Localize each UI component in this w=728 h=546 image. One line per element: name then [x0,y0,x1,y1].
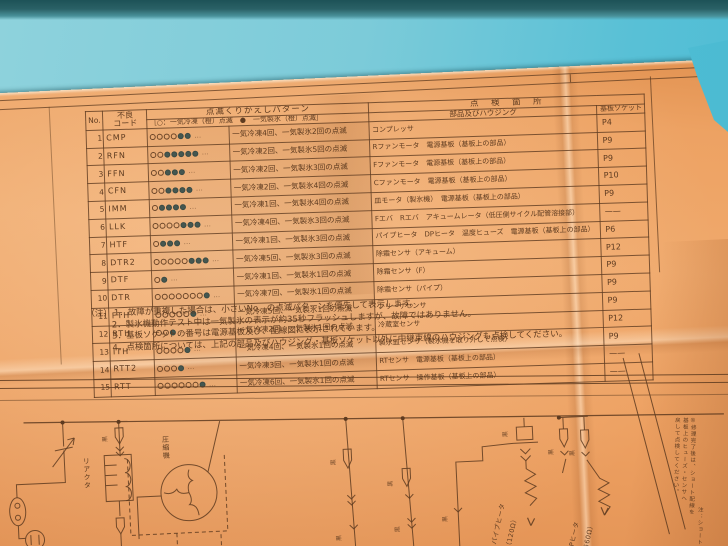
cell-fault-code: FFN [105,164,150,183]
cell-board-socket: —— [600,202,649,221]
blink-dot-filled [193,151,199,157]
cell-board-socket: P4 [597,113,646,132]
cell-fault-code: LLK [106,217,151,236]
service-sheet-paper: No. 不良 コード 点滅くりかえしパターン 点 検 箇 所 ［○：一気冷凍（橙… [0,55,728,546]
blink-dot-filled [187,186,193,192]
blink-dot-filled [159,205,165,211]
blink-dot-filled [165,152,171,158]
blink-dot-filled [178,133,184,139]
cell-row-number: 7 [89,237,107,255]
blink-dot-filled [172,169,178,175]
cell-fault-code: CMP [103,128,148,147]
cell-row-number: 9 [90,272,108,290]
cell-fault-code: DTR2 [107,253,152,272]
cell-row-number: 3 [87,165,105,183]
pattern-repeat-ellipsis: … [213,291,222,299]
blink-dot-open [158,170,164,176]
pattern-repeat-ellipsis: … [212,255,221,263]
compressor-label: 圧縮機 [160,435,171,459]
wire-color-label: 黒 [567,450,576,456]
blink-dot-filled [172,151,178,157]
blink-dot-open [182,258,188,264]
col-header-fault-code: 不良 コード [103,110,148,130]
pattern-repeat-ellipsis: … [204,220,213,228]
pipe-heater-symbol [524,460,538,525]
connector-drop-a [342,419,359,546]
wire-color-label: 黒 [100,436,109,442]
cell-fault-code: RFN [104,146,149,165]
cell-board-socket: P9 [598,131,647,150]
pattern-repeat-ellipsis: … [202,149,211,157]
connector-c1 [559,416,591,473]
blink-dot-open [160,223,166,229]
wire-color-label: 黒 [500,431,509,437]
fault-code-header-line2: コード [113,118,137,128]
blink-dot-filled [180,187,186,193]
cell-row-number: 6 [89,219,107,237]
cell-row-number: 1 [86,130,104,148]
pattern-repeat-ellipsis: … [188,167,197,175]
blink-dot-open [155,277,161,283]
blink-dot-open [162,294,168,300]
photo-scene: No. 不良 コード 点滅くりかえしパターン 点 検 箇 所 ［○：一気冷凍（橙… [0,0,728,546]
blink-dot-open [183,293,189,299]
blink-dot-filled [181,222,187,228]
blink-dot-open [176,294,182,300]
blink-dot-open [153,241,159,247]
repair-side-note-line2: 基板上のヒューズ・センサへ [680,417,688,502]
cell-fault-code: CFN [105,182,150,201]
repair-side-note: ◎修理完了後は、ショート配線を 基板上のヒューズ・センサへ 戻して点検してくださ… [671,417,697,504]
table-surface-dark-band [0,0,728,20]
blink-dot-filled [196,257,202,263]
blink-dot-open [197,293,203,299]
junction-dots [60,397,561,443]
blink-dot-open [152,205,158,211]
repair-side-note-line1: ◎修理完了後は、ショート配線を [688,417,696,515]
blink-dot-open [161,259,167,265]
cell-board-socket: P12 [601,237,650,256]
blink-dot-filled [174,240,180,246]
wire-color-label: 黒 [440,516,449,522]
cell-row-number: 8 [90,254,108,272]
blink-dot-filled [189,258,195,264]
notes-label: （注） [86,308,112,320]
blink-dot-filled [167,240,173,246]
col-header-no: No. [85,111,103,130]
blink-dot-open [151,152,157,158]
blink-dot-open [157,134,163,140]
blink-dot-open [153,223,159,229]
blink-dot-filled [188,222,194,228]
pattern-repeat-ellipsis: … [194,131,203,139]
reactor-label: リアクタ [81,457,92,489]
cell-row-number: 5 [88,201,106,219]
cell-fault-code: HTF [107,235,152,254]
plug-symbol [25,530,45,546]
cell-board-socket: P9 [599,184,648,203]
cell-row-number: 4 [88,183,106,201]
pattern-repeat-ellipsis: … [171,274,180,282]
blink-dot-open [175,258,181,264]
blink-dot-filled [179,151,185,157]
cell-board-socket: P6 [601,220,650,239]
pattern-repeat-ellipsis: … [189,202,198,210]
connector-c2-dp-heater [580,416,611,516]
blink-dot-open [159,187,165,193]
blink-dot-open [158,152,164,158]
cell-row-number: 2 [87,148,105,166]
blink-dot-open [155,294,161,300]
blink-dot-filled [180,204,186,210]
cell-row-number: 10 [91,290,109,308]
blink-dot-filled [166,205,172,211]
cell-board-socket: P9 [598,148,647,167]
blink-dot-open [164,134,170,140]
blink-dot-open [171,134,177,140]
cell-fault-code: DTR [108,289,153,308]
blink-dot-filled [162,276,168,282]
blink-dot-open [190,293,196,299]
short-circuit-foot-note: 注：ショート 20秒 [695,507,704,546]
blink-dot-filled [160,241,166,247]
cell-fault-code: IMM [106,200,151,219]
blink-dot-open [174,222,180,228]
compressor-symbol [126,421,229,546]
varistor-symbol [14,422,77,498]
blink-dot-open [151,170,157,176]
blink-dot-filled [204,293,210,299]
cell-board-socket: P9 [602,273,651,292]
blink-dot-filled [173,205,179,211]
blink-dot-open [168,258,174,264]
pattern-repeat-ellipsis: … [183,238,192,246]
terminal-oval-symbol [9,497,27,539]
blink-dot-filled [203,257,209,263]
wiring-diagram-section: バリスタ リアクタ 圧縮機 黒 黒 黒 黒 黒 黒 黒 黒 黒 パイプヒータ （… [0,337,728,546]
blink-dot-filled [166,187,172,193]
blink-dot-filled [179,169,185,175]
blink-dot-filled [185,133,191,139]
cell-fault-code: DTF [108,271,153,290]
pattern-repeat-ellipsis: … [196,184,205,192]
blink-dot-filled [165,169,171,175]
wire-color-label: 黒 [385,480,394,486]
cell-board-socket: P9 [602,255,651,274]
blink-dot-open [152,188,158,194]
blink-dot-open [154,259,160,265]
wire-color-label: 黒 [392,526,401,532]
blink-dot-open [169,294,175,300]
wire-color-label: 黒 [334,535,343,541]
wire-color-label: 黒 [546,449,555,455]
blink-dot-open [167,223,173,229]
blink-dot-filled [195,222,201,228]
repair-side-note-line3: 戻して点検してください。 [672,417,680,495]
blink-dot-filled [186,151,192,157]
wire-color-label: 黒 [328,459,337,465]
connector-drop-b [400,418,417,546]
blink-dot-open [150,134,156,140]
blink-dot-filled [173,187,179,193]
cell-board-socket: P10 [599,166,648,185]
wiring-diagram-drawing [0,337,728,546]
